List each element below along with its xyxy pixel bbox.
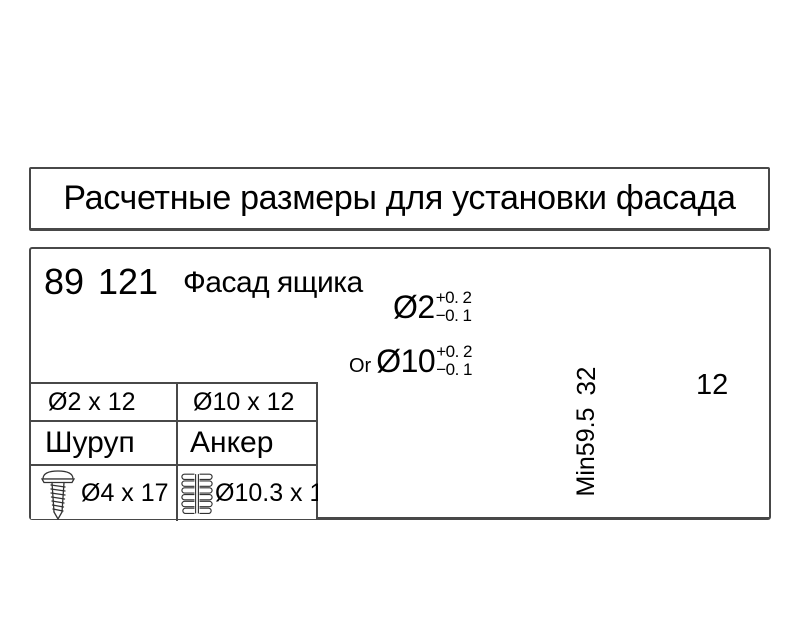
cell-screw-dim: Ø4 x 17 — [31, 464, 176, 521]
screw-icon — [39, 468, 77, 520]
euro-dowel-icon — [180, 471, 214, 517]
cell-screw-name: Шуруп — [31, 420, 176, 464]
cell-anchor-hole-size: Ø10 x 12 — [176, 384, 318, 420]
cell-anchor-dim: Ø10.3 x 10 — [176, 464, 318, 521]
page: Расчетные размеры для установки фасада 8… — [0, 0, 800, 640]
screw-dim-label: Ø4 x 17 — [81, 479, 169, 508]
dim-min59-label: Min59.5 — [572, 407, 600, 497]
anchor-dim-label: Ø10.3 x 10 — [215, 479, 318, 508]
dia-value: Ø2 — [393, 289, 435, 325]
page-title: Расчетные размеры для установки фасада — [63, 179, 735, 218]
dia-value: Ø10 — [376, 343, 435, 379]
screw-hole-dia-label: Ø2+0. 2−0. 1 — [393, 289, 471, 326]
anchor-hole-dia-label: OrØ10+0. 2−0. 1 — [349, 343, 472, 380]
or-label: Or — [349, 355, 371, 377]
dim-12-label: 12 — [696, 369, 728, 402]
fasteners-table: Ø2 x 12 Ø10 x 12 Шуруп Анкер Ø4 x 17 — [31, 382, 318, 519]
dim-32-label: 32 — [572, 361, 600, 401]
facade-caption: Фасад ящика — [183, 267, 363, 299]
drawer-width-value: 89 — [44, 264, 84, 300]
drawer-height-value: 121 — [98, 264, 158, 300]
cell-anchor-name: Анкер — [176, 420, 318, 464]
tolerance-stack: +0. 2−0. 1 — [436, 289, 472, 325]
cell-screw-hole-size: Ø2 x 12 — [31, 384, 176, 420]
title-banner: Расчетные размеры для установки фасада — [29, 167, 770, 231]
tolerance-stack: +0. 2−0. 1 — [436, 343, 472, 379]
